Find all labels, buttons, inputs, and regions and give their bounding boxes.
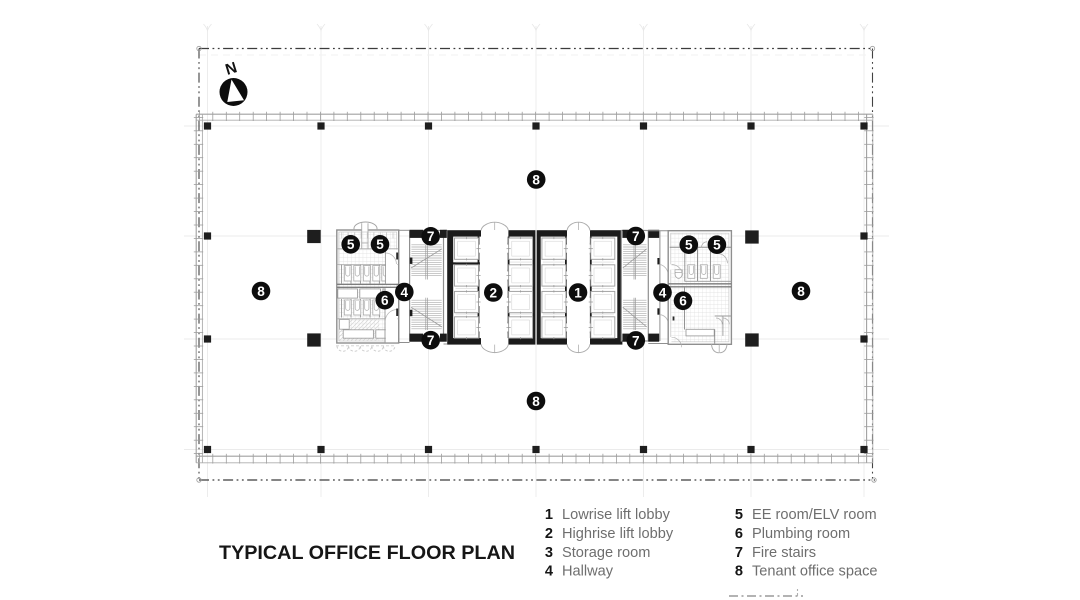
svg-text:Plumbing room: Plumbing room	[752, 526, 850, 542]
svg-text:Storage room: Storage room	[562, 545, 650, 561]
svg-text:6: 6	[679, 294, 687, 309]
svg-text:Fire stairs: Fire stairs	[752, 545, 816, 561]
svg-text:7: 7	[632, 229, 640, 244]
svg-text:5: 5	[376, 237, 384, 252]
svg-text:8: 8	[797, 284, 805, 299]
svg-text:8: 8	[532, 394, 540, 409]
svg-text:1: 1	[574, 285, 582, 300]
svg-text:2: 2	[545, 526, 553, 542]
svg-text:8: 8	[735, 564, 743, 580]
svg-text:4: 4	[659, 285, 667, 300]
svg-text:7: 7	[632, 333, 640, 348]
svg-text:Tenant office space: Tenant office space	[752, 564, 878, 580]
svg-text:2: 2	[490, 285, 498, 300]
svg-text:4: 4	[401, 285, 409, 300]
svg-text:1: 1	[545, 507, 553, 523]
svg-text:5: 5	[685, 238, 693, 253]
svg-text:EE room/ELV room: EE room/ELV room	[752, 507, 877, 523]
svg-text:TYPICAL OFFICE FLOOR PLAN: TYPICAL OFFICE FLOOR PLAN	[219, 543, 515, 564]
svg-text:8: 8	[532, 172, 540, 187]
svg-text:4: 4	[545, 564, 554, 580]
svg-text:3: 3	[545, 545, 553, 561]
svg-text:6: 6	[381, 293, 389, 308]
svg-text:5: 5	[713, 238, 721, 253]
svg-text:5: 5	[735, 507, 743, 523]
svg-text:7: 7	[427, 229, 435, 244]
svg-text:6: 6	[735, 526, 743, 542]
svg-text:7: 7	[735, 545, 743, 561]
svg-text:Lowrise lift lobby: Lowrise lift lobby	[562, 507, 671, 523]
svg-text:Highrise lift lobby: Highrise lift lobby	[562, 526, 674, 542]
svg-text:8: 8	[257, 284, 265, 299]
svg-text:Hallway: Hallway	[562, 564, 614, 580]
svg-text:7: 7	[427, 333, 435, 348]
svg-text:5: 5	[347, 237, 355, 252]
